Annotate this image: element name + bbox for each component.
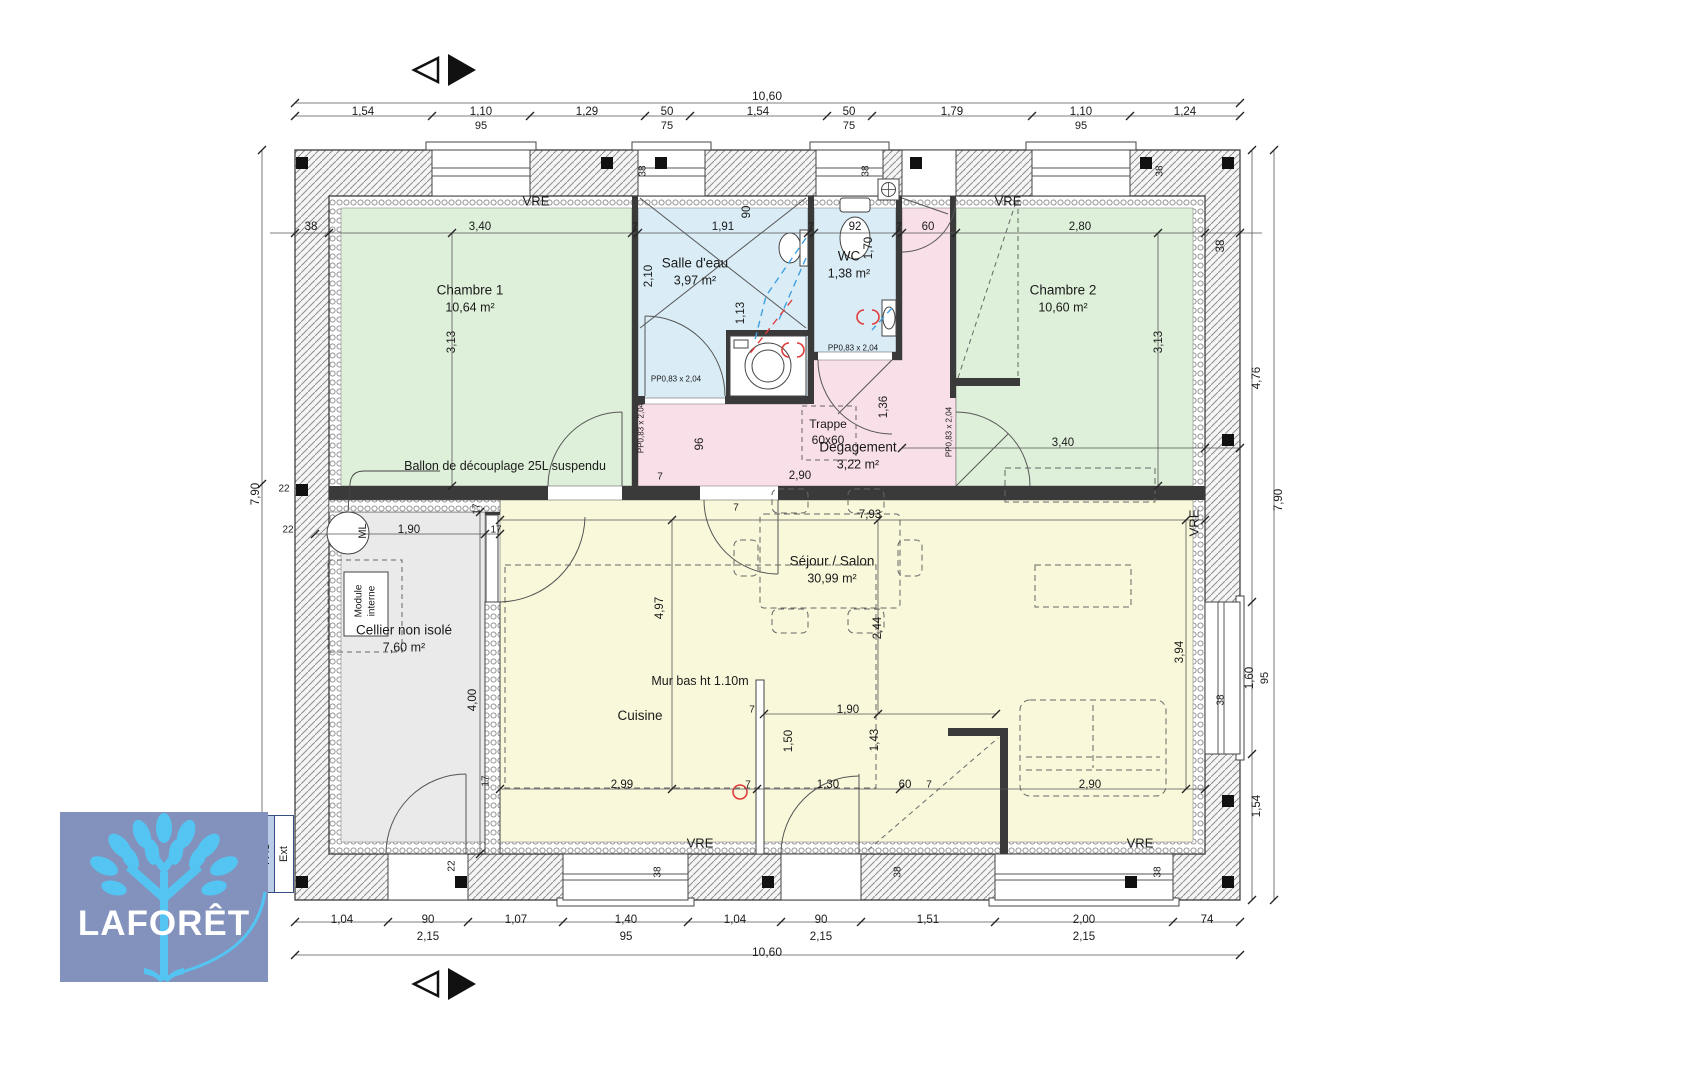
pac-pipe-overlay	[0, 0, 1689, 1079]
pac-pipe	[175, 892, 265, 974]
floor-plan-page: 10,601,541,10951,2950751,5450751,791,109…	[0, 0, 1689, 1079]
